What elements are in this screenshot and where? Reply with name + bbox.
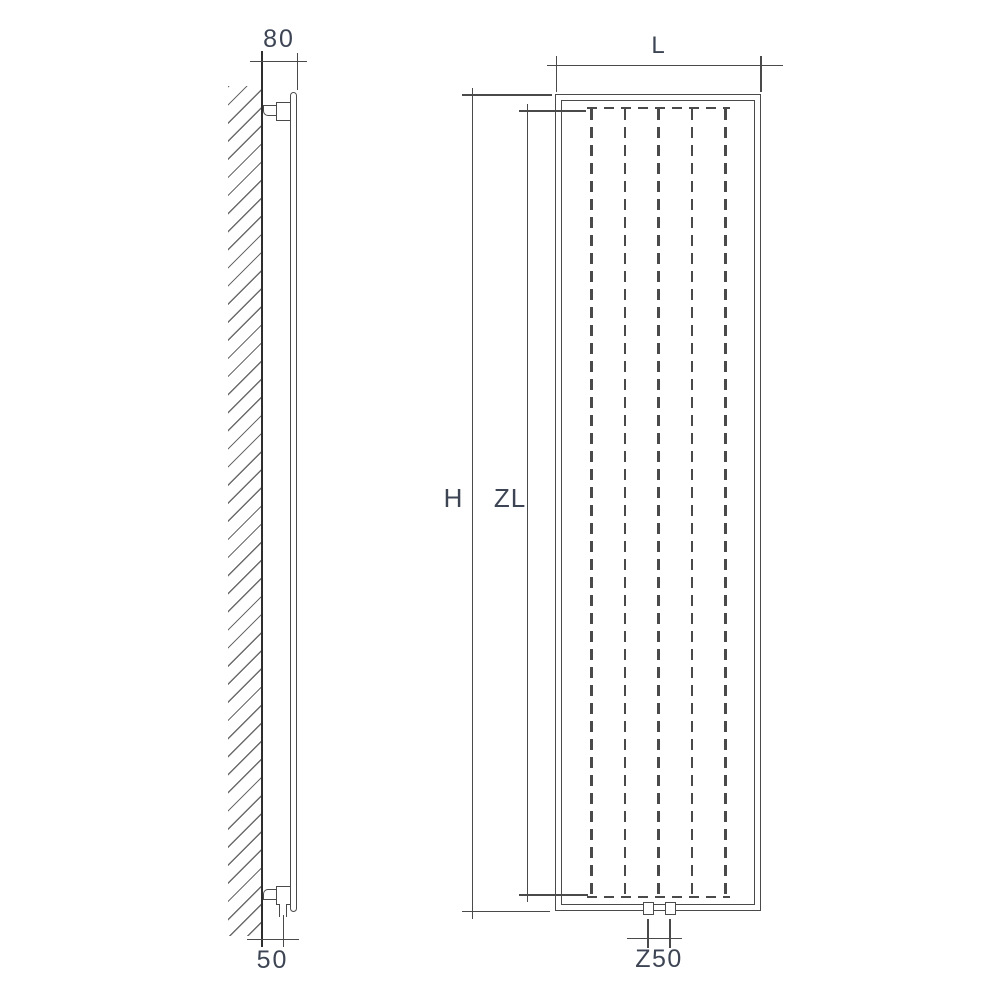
bottom-bracket-block [276, 886, 291, 905]
dim-H-line [472, 88, 473, 919]
dim-50-extension-right [283, 915, 284, 947]
dim-80-extension-right [297, 53, 298, 90]
dim-L-extension-right [760, 56, 761, 92]
dim-80-label: 80 [249, 27, 309, 52]
dim-Z50-extension-left [647, 919, 648, 948]
wall-hatch [228, 86, 261, 936]
dim-H-extension-bottom [462, 911, 550, 912]
fin-dashed-line-5 [724, 109, 726, 894]
dim-L-extension-left [556, 56, 557, 92]
dim-Z50-extension-right [669, 919, 670, 948]
dim-L-label: L [638, 34, 678, 58]
dim-50-line [247, 939, 299, 940]
fin-dashed-line-3 [657, 109, 659, 894]
fin-dashed-line-2 [624, 109, 626, 894]
fin-dashed-line-4 [691, 109, 693, 894]
fin-zone-bottom-dashed-line [587, 896, 730, 898]
top-bracket-block [276, 102, 291, 121]
dim-50-label: 50 [245, 948, 300, 973]
connection-left [643, 902, 654, 915]
dim-H-extension-top [462, 94, 552, 95]
dim-L-line [547, 65, 783, 66]
wall-face-line [261, 51, 263, 947]
fin-dashed-line-1 [590, 109, 592, 894]
dim-ZL-label: ZL [488, 485, 532, 511]
dim-Z50-label: Z50 [626, 947, 692, 972]
dim-H-label: H [437, 485, 469, 511]
radiator-technical-drawing: 80 50 L H ZL [0, 0, 1000, 1000]
dim-80-line [250, 61, 307, 62]
dim-ZL-extension-top [519, 110, 586, 111]
connection-right [665, 902, 676, 915]
dim-Z50-line [627, 938, 682, 939]
radiator-panel-side [290, 92, 297, 912]
dim-ZL-extension-bottom [519, 894, 588, 895]
